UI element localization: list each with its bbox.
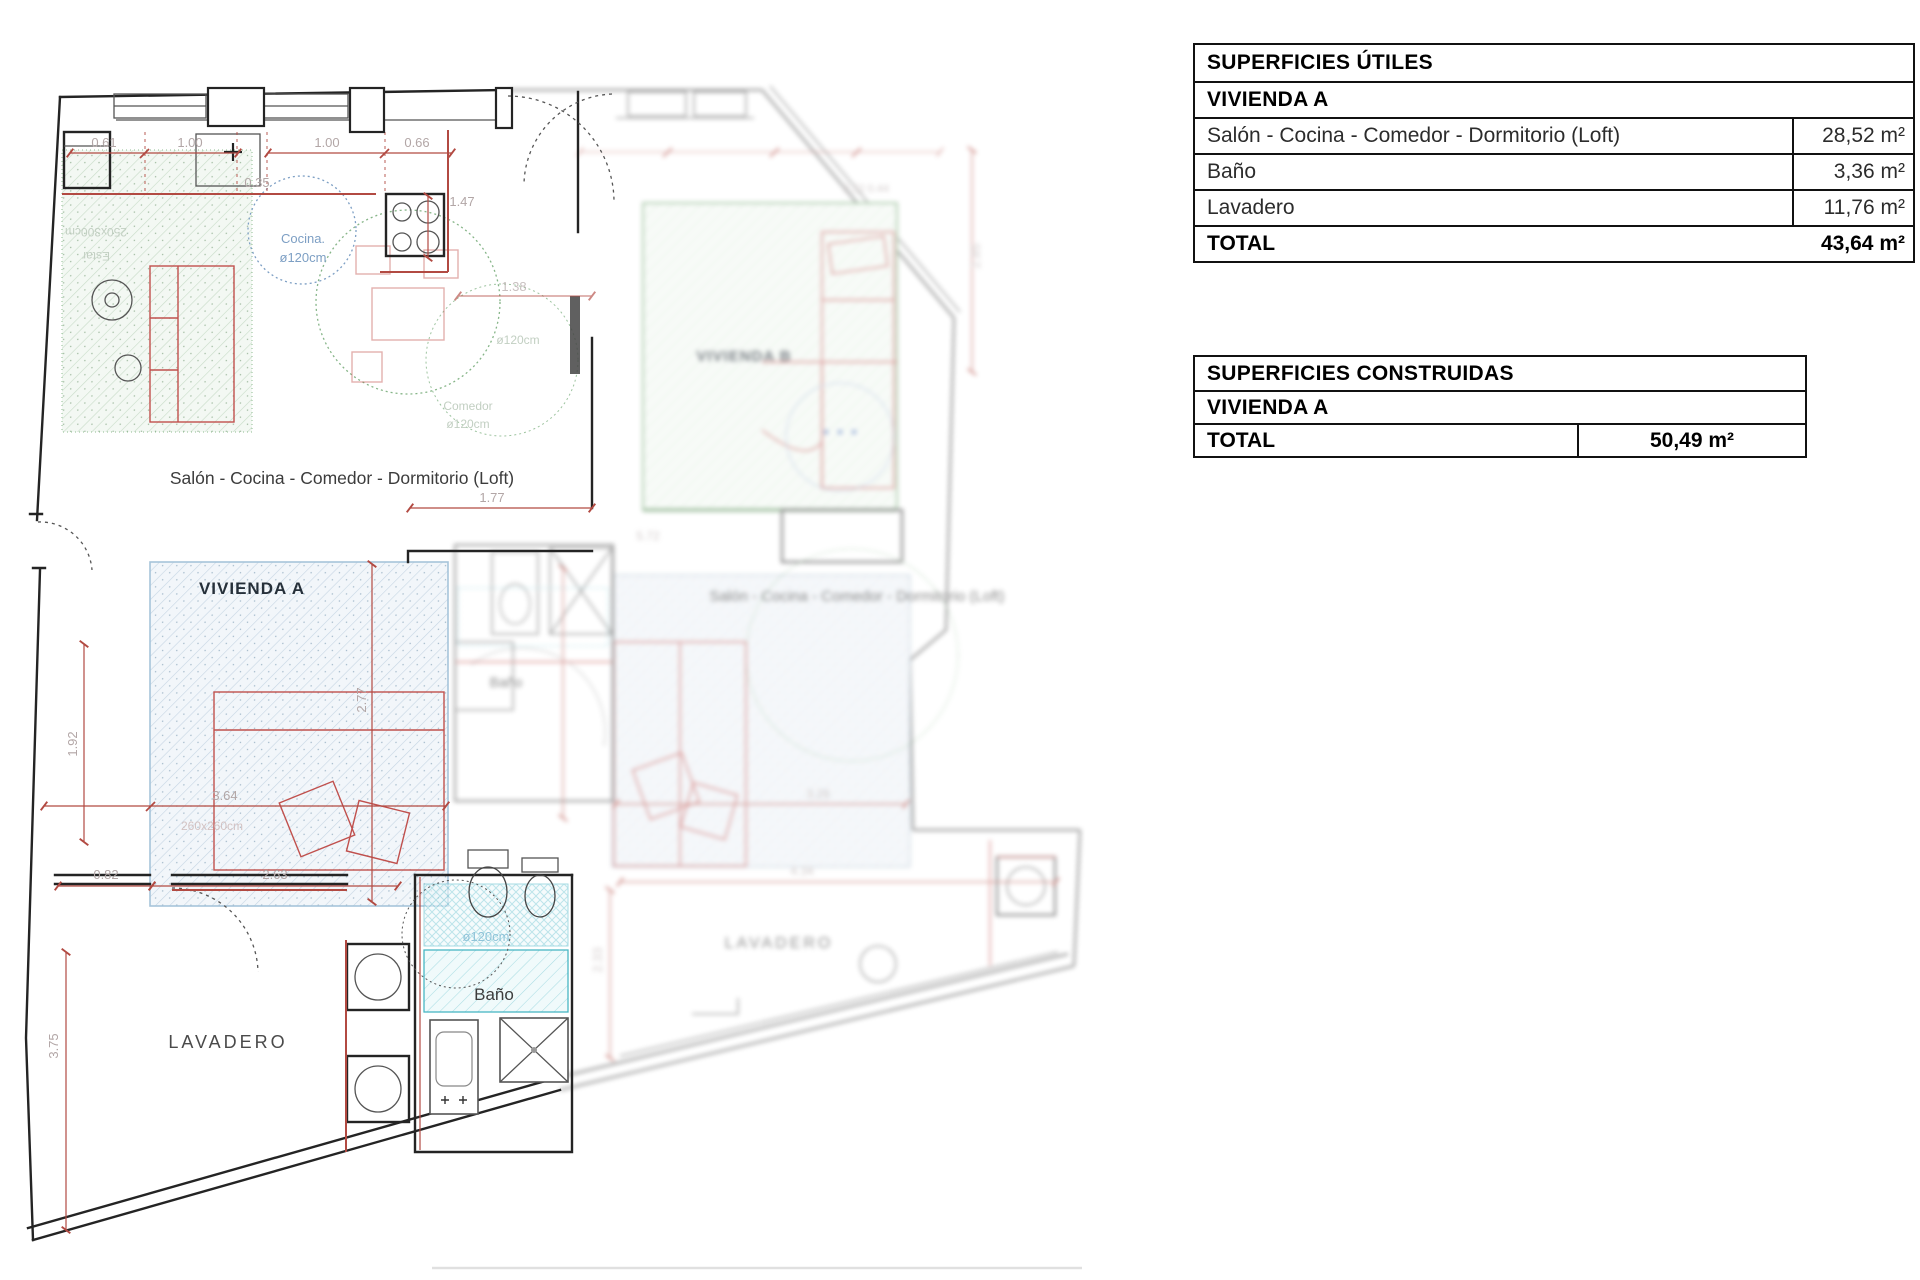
- page: VIVIENDA B Salón - Cocina - Comedor - Do…: [0, 0, 1920, 1280]
- room-label-vivienda-a: VIVIENDA A: [199, 579, 305, 598]
- dim-1-77: 1.77: [479, 490, 504, 505]
- note-dorm-size: 260x260cm: [181, 819, 243, 833]
- dim-1-47: 1.47: [449, 194, 474, 209]
- note-comedor-line1: Comedor: [443, 399, 492, 413]
- room-label-vivienda-b: VIVIENDA B: [696, 348, 791, 365]
- note-cocina-line2: ø120cm: [280, 250, 327, 265]
- row-label: Lavadero: [1195, 191, 1792, 225]
- dining-set: [352, 246, 458, 382]
- room-label-bano-a: Baño: [474, 985, 514, 1004]
- dim-4-34: 4.34: [790, 864, 814, 878]
- note-estar-line2: Estar: [82, 249, 110, 263]
- total-value: 43,64 m²: [1792, 227, 1913, 261]
- dim-5-72: 5.72: [636, 529, 660, 543]
- table-title: SUPERFICIES CONSTRUIDAS: [1195, 357, 1805, 390]
- note-turning-circle: ø120cm: [496, 333, 539, 347]
- row-value: 3,36 m²: [1792, 155, 1913, 189]
- dim-1-92: 1.92: [65, 731, 80, 756]
- row-value: 28,52 m²: [1792, 119, 1913, 153]
- dim-1-00-b: 1.00: [314, 135, 339, 150]
- table-row: SUPERFICIES CONSTRUIDAS: [1195, 357, 1805, 390]
- table-title: SUPERFICIES ÚTILES: [1195, 45, 1913, 81]
- superficies-construidas-table: SUPERFICIES CONSTRUIDAS VIVIENDA A TOTAL…: [1193, 355, 1807, 458]
- room-label-salon-a: Salón - Cocina - Comedor - Dormitorio (L…: [170, 468, 514, 488]
- room-label-bano-b: Baño: [490, 674, 523, 690]
- table-row: VIVIENDA A: [1195, 390, 1805, 423]
- row-label: Baño: [1195, 155, 1792, 189]
- dim-2-63: 2.63: [262, 867, 287, 882]
- dim-3-75: 3.75: [46, 1033, 61, 1058]
- room-label-salon-b: Salón - Cocina - Comedor - Dormitorio (L…: [709, 588, 1004, 605]
- note-cocina-line1: Cocina.: [281, 231, 325, 246]
- total-label: TOTAL: [1195, 227, 1792, 261]
- dim-0-66: 0.66: [404, 135, 429, 150]
- room-label-lavadero-a: LAVADERO: [168, 1032, 287, 1052]
- note-comedor-line2: ø120cm: [446, 417, 489, 431]
- dim-3-28: 3.28: [806, 787, 830, 801]
- room-label-lavadero-b: LAVADERO: [725, 935, 834, 952]
- table-row: SUPERFICIES ÚTILES: [1195, 45, 1913, 81]
- table-total-row: TOTAL 50,49 m²: [1195, 423, 1805, 456]
- table-row: Salón - Cocina - Comedor - Dormitorio (L…: [1195, 117, 1913, 153]
- note-bano-circle: ø120cm: [463, 929, 510, 944]
- table-subtitle: VIVIENDA A: [1195, 83, 1913, 117]
- vivienda-b-bedroom: [643, 203, 902, 562]
- vivienda-b-bath: [455, 545, 613, 818]
- dim-0-35: 0.35: [244, 175, 269, 190]
- table-row: Lavadero 11,76 m²: [1195, 189, 1913, 225]
- dim-0-82: 0.82: [93, 867, 118, 882]
- row-label: Salón - Cocina - Comedor - Dormitorio (L…: [1195, 119, 1792, 153]
- dim-1-00-a: 1.00: [177, 135, 202, 150]
- table-subtitle: VIVIENDA A: [1195, 392, 1805, 423]
- total-value: 50,49 m²: [1577, 425, 1805, 456]
- dim-0-61: 0.61: [91, 135, 116, 150]
- vivienda-a-area: Salón - Cocina - Comedor - Dormitorio (L…: [26, 88, 614, 1240]
- dim-2-77: 2.77: [354, 687, 369, 712]
- note-estar-line1: 250x300cm: [65, 225, 127, 239]
- superficies-utiles-table: SUPERFICIES ÚTILES VIVIENDA A Salón - Co…: [1193, 43, 1915, 263]
- dim-2-85: 2.85: [968, 243, 983, 268]
- table-total-row: TOTAL 43,64 m²: [1195, 225, 1913, 261]
- dim-3-64: 3.64: [212, 788, 237, 803]
- dim-2-33: 2.33: [590, 947, 605, 972]
- dim-0-32-0-44: 0.32 0.44: [843, 183, 889, 195]
- row-value: 11,76 m²: [1792, 191, 1913, 225]
- table-row: VIVIENDA A: [1195, 81, 1913, 117]
- total-label: TOTAL: [1195, 425, 1577, 456]
- dim-1-38: 1.38: [501, 279, 526, 294]
- vivienda-a-bedroom-zone: [150, 562, 448, 906]
- table-row: Baño 3,36 m²: [1195, 153, 1913, 189]
